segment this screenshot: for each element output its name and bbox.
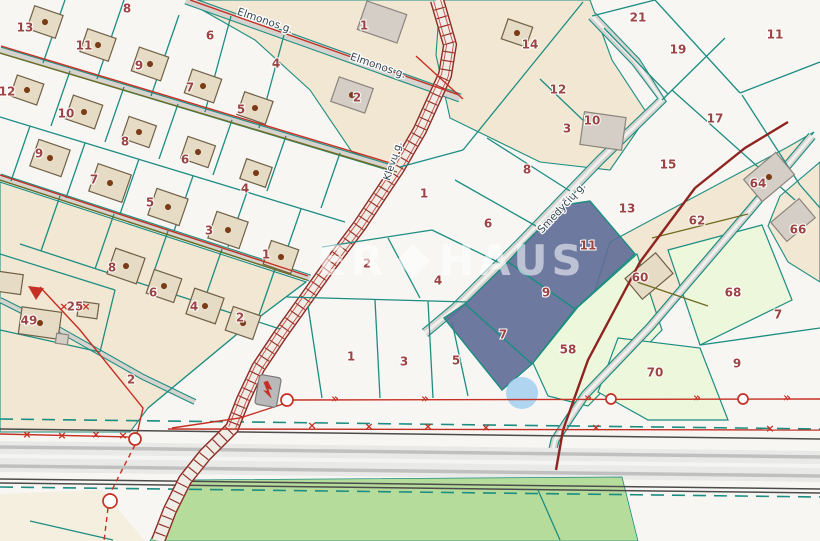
x-mark-icon: ×: [423, 420, 432, 433]
parcel-number-label: 13: [17, 21, 34, 35]
parcel-number-label: 49: [21, 314, 38, 328]
x-mark-icon: ×: [364, 420, 373, 433]
flow-arrow-icon: »: [331, 392, 339, 406]
parcel-number-label: 9: [35, 147, 43, 161]
x-mark-icon: ×: [22, 428, 31, 441]
parcel-number-label: 9: [542, 286, 550, 300]
parcel-number-label: 4: [241, 182, 249, 196]
parcel-number-label: 6: [206, 29, 214, 43]
parcel-number-label: 4: [272, 57, 280, 71]
utility-node: [606, 394, 616, 404]
parcel-number-label: 25: [67, 300, 84, 314]
house-footprint: [55, 333, 68, 345]
parcel-number-label: 11: [767, 28, 784, 42]
flow-arrow-icon: »: [693, 391, 701, 405]
parcel-number-label: 66: [790, 223, 807, 237]
parcel-number-label: 21: [630, 11, 647, 25]
parcel-number-label: 10: [58, 107, 75, 121]
parcel-number-label: 2: [236, 311, 244, 325]
house-footprint: [0, 271, 23, 294]
parcel-number-label: 3: [563, 122, 571, 136]
parcel-number-label: 8: [523, 163, 531, 177]
utility-node: [281, 394, 293, 406]
parcel-number-label: 2: [127, 373, 135, 387]
x-mark-icon: ×: [57, 429, 66, 442]
parcel-number-label: 7: [774, 308, 782, 322]
parcel-number-label: 60: [632, 271, 649, 285]
parcel-number-label: 15: [660, 158, 677, 172]
flow-arrow-icon: »: [783, 391, 791, 405]
transformer-icon: [255, 374, 282, 407]
parcel-number-label: 10: [584, 114, 601, 128]
parcel-number-label: 7: [499, 328, 507, 342]
parcel-number-label: 64: [750, 177, 767, 191]
flow-arrow-icon: »: [584, 391, 592, 405]
parcel-number-label: 5: [452, 354, 460, 368]
parcel-number-label: 8: [123, 2, 131, 16]
house: [55, 333, 68, 345]
parcel-number-label: 11: [580, 239, 597, 253]
parcel-number-label: 68: [725, 286, 742, 300]
utility-node: [738, 394, 748, 404]
parcel-number-label: 1: [420, 187, 428, 201]
x-mark-icon: ×: [307, 419, 316, 432]
x-mark-icon: ×: [91, 428, 100, 441]
parcel-number-label: 5: [237, 103, 245, 117]
parcel-number-label: 3: [400, 355, 408, 369]
parcel-number-label: 9: [733, 357, 741, 371]
parcel-number-label: 2: [353, 91, 361, 105]
parcel-number-label: 2: [363, 257, 371, 271]
utility-node: [103, 494, 117, 508]
parcel-number-label: 12: [550, 83, 567, 97]
parcel-number-label: 1: [262, 248, 270, 262]
cadastral-map[interactable]: »»»»»××××××××××××13119758641210864975318…: [0, 0, 820, 541]
parcel-number-label: 1: [360, 19, 368, 33]
parcel-number-label: 14: [522, 38, 539, 52]
pond: [506, 377, 538, 409]
parcel-number-label: 58: [560, 343, 577, 357]
parcel-number-label: 13: [619, 202, 636, 216]
parcel-number-label: 4: [190, 300, 198, 314]
parcel-number-label: 70: [647, 366, 664, 380]
parcel-number-label: 7: [90, 173, 98, 187]
parcel-number-label: 19: [670, 43, 687, 57]
parcel-number-label: 3: [205, 224, 213, 238]
map-canvas[interactable]: »»»»»××××××××××××13119758641210864975318…: [0, 0, 820, 541]
parcel-number-label: 7: [186, 81, 194, 95]
parcel-number-label: 5: [146, 196, 154, 210]
parcel-number-label: 17: [707, 112, 724, 126]
x-mark-icon: ×: [118, 429, 127, 442]
flow-arrow-icon: »: [421, 392, 429, 406]
parcel-number-label: 62: [689, 214, 706, 228]
utility-line: [168, 429, 820, 430]
parcel-number-label: 12: [0, 85, 15, 99]
parcel-number-label: 6: [181, 153, 189, 167]
utility-node: [129, 433, 141, 445]
parcel-number-label: 8: [108, 261, 116, 275]
x-mark-icon: ×: [591, 421, 600, 434]
parcel-number-label: 8: [121, 135, 129, 149]
parcel-number-label: 6: [484, 217, 492, 231]
x-mark-icon: ×: [481, 421, 490, 434]
house: [0, 271, 23, 294]
parcel-number-label: 6: [149, 286, 157, 300]
parcel-number-label: 4: [434, 274, 442, 288]
parcel-number-label: 11: [76, 39, 93, 53]
parcel-number-label: 9: [135, 59, 143, 73]
parcel-number-label: 1: [347, 350, 355, 364]
x-mark-icon: ×: [765, 422, 774, 435]
